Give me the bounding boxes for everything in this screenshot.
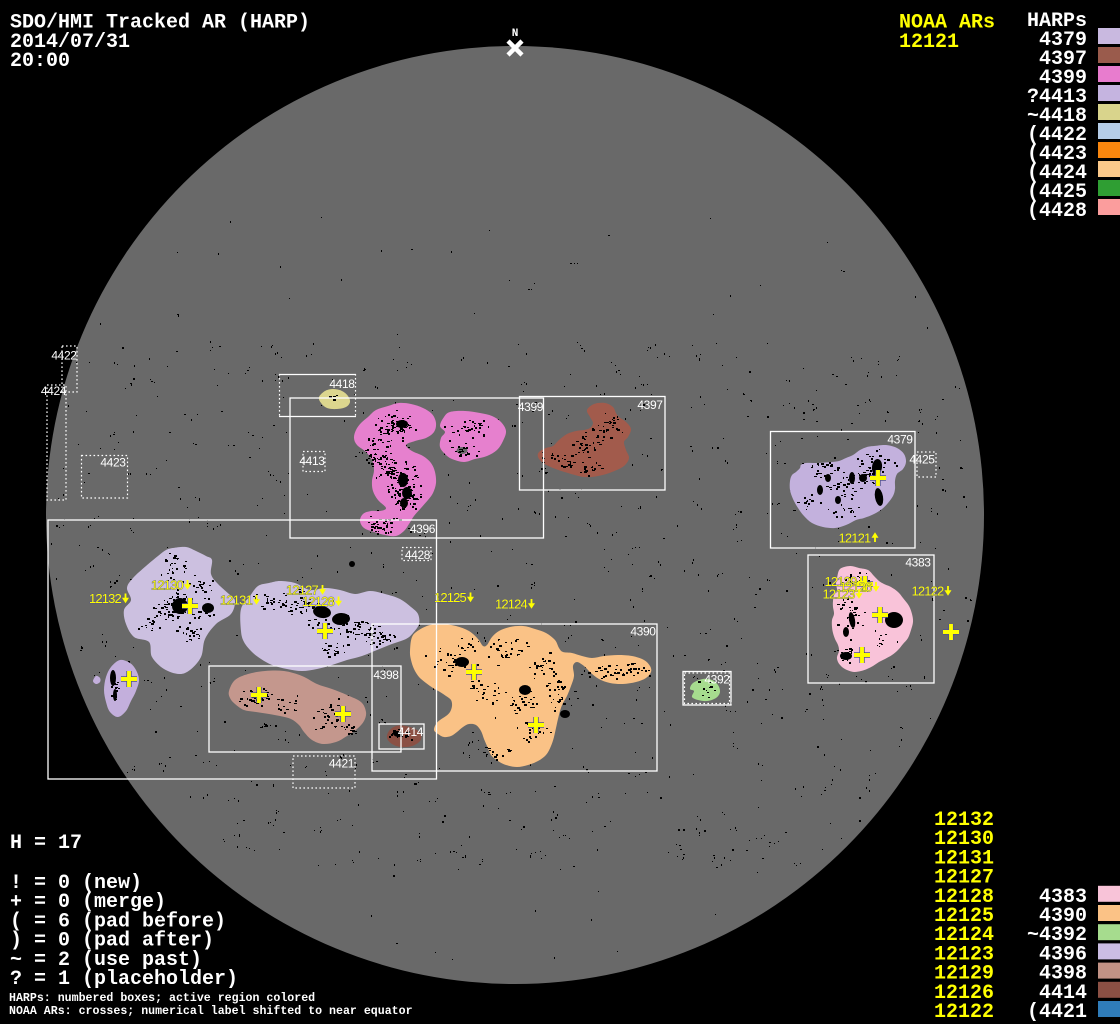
svg-text:4428: 4428 (405, 548, 431, 562)
svg-text:4421: 4421 (329, 757, 355, 771)
svg-text:20:00: 20:00 (10, 50, 70, 73)
svg-text:12122: 12122 (934, 1001, 994, 1024)
svg-text:(4421: (4421 (1027, 1001, 1087, 1024)
svg-text:12125: 12125 (434, 590, 467, 605)
svg-text:12132: 12132 (89, 591, 122, 606)
svg-text:H = 17: H = 17 (10, 832, 82, 855)
svg-text:4413: 4413 (299, 454, 325, 468)
svg-text:? = 1 (placeholder): ? = 1 (placeholder) (10, 968, 238, 991)
svg-text:4396: 4396 (410, 522, 436, 536)
svg-text:NOAA ARs: crosses; numerical l: NOAA ARs: crosses; numerical label shift… (9, 1005, 413, 1018)
svg-text:4414: 4414 (398, 725, 424, 739)
svg-text:4398: 4398 (373, 668, 399, 682)
svg-text:4390: 4390 (630, 625, 656, 639)
svg-text:(4428: (4428 (1027, 200, 1087, 223)
svg-text:4399: 4399 (518, 400, 544, 414)
svg-text:4422: 4422 (51, 349, 77, 363)
svg-text:HARPs: numbered boxes; active: HARPs: numbered boxes; active region col… (9, 992, 315, 1005)
svg-text:4423: 4423 (100, 456, 126, 470)
svg-text:4424: 4424 (41, 384, 67, 398)
svg-text:12122: 12122 (912, 584, 945, 599)
svg-text:12121: 12121 (839, 531, 872, 546)
svg-text:4397: 4397 (637, 398, 663, 412)
svg-text:12130: 12130 (151, 578, 184, 593)
svg-text:12124: 12124 (495, 597, 528, 612)
svg-text:N: N (512, 28, 519, 40)
svg-text:12123: 12123 (823, 587, 856, 602)
svg-text:12128: 12128 (302, 594, 335, 609)
svg-text:4418: 4418 (329, 377, 355, 391)
svg-text:4392: 4392 (704, 673, 730, 687)
svg-text:12121: 12121 (899, 31, 959, 54)
svg-text:4425: 4425 (909, 453, 935, 467)
svg-text:4383: 4383 (905, 556, 931, 570)
svg-text:4379: 4379 (887, 433, 913, 447)
svg-text:12131: 12131 (220, 593, 253, 608)
